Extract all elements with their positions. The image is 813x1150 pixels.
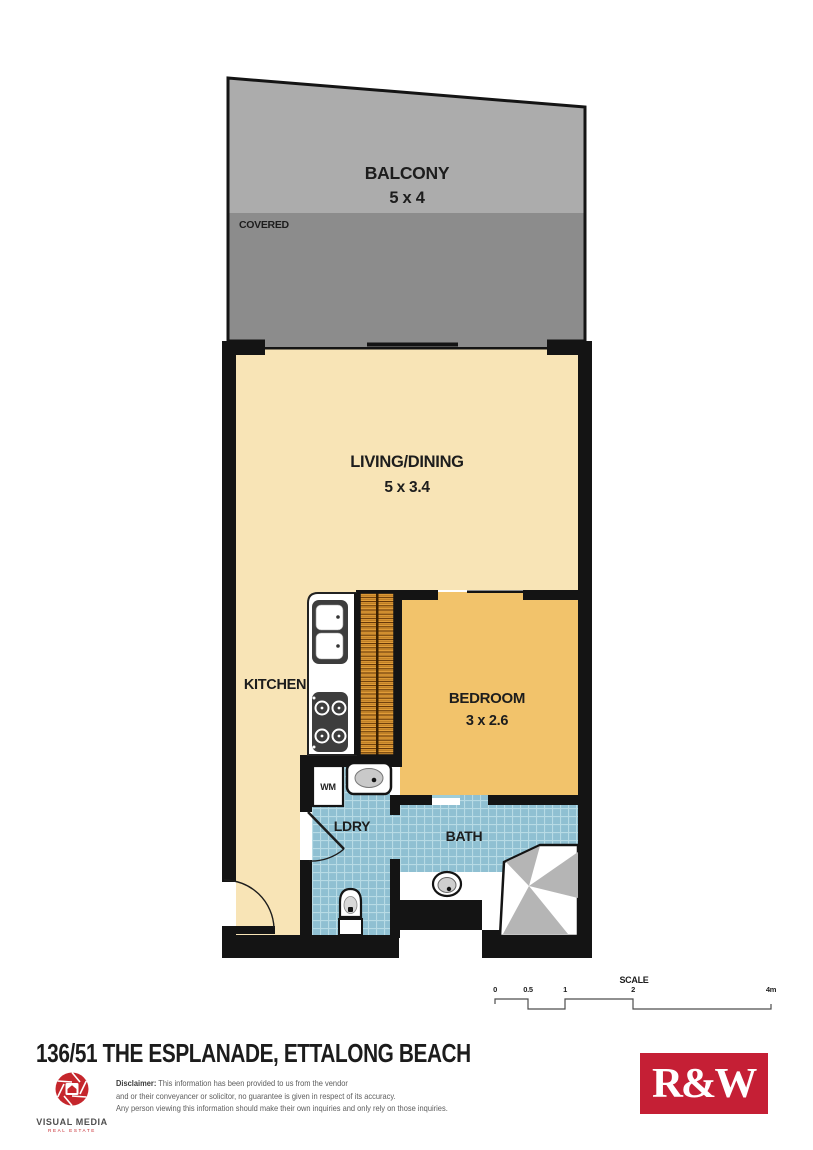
scale-tick-2: 2 [631,985,635,994]
living-label: LIVING/DINING [350,453,463,471]
bath-label: BATH [446,828,483,844]
balcony-sliding-door [265,347,547,350]
kitchen-label: KITCHEN [244,677,306,693]
visual-media-tagline: REAL ESTATE [36,1128,108,1133]
visual-media-logo: VISUAL MEDIA REAL ESTATE [36,1070,108,1133]
bedroom-label: BEDROOM [449,690,525,707]
agency-logo-text: R&W [652,1060,755,1108]
scale-tick-05: 0.5 [523,985,533,994]
bedroom-sliding-door [467,591,523,594]
disclaimer-label: Disclaimer: [116,1078,156,1088]
toilet [339,889,362,935]
kitchen-fittings [308,593,394,755]
laundry-tub [347,763,391,794]
disclaimer-line1: This information has been provided to us… [158,1078,348,1088]
floors [236,339,578,937]
bath-basin [433,872,461,896]
bedroom-dims: 3 x 2.6 [466,713,508,729]
balcony-covered-label: COVERED [239,219,290,231]
scale-tick-1: 1 [563,985,567,994]
property-address: 136/51 THE ESPLANADE, ETTALONG BEACH [36,1038,471,1069]
bedroom-wardrobe [360,593,394,755]
shower [500,845,578,936]
kitchen-sink [312,600,348,664]
hall-floor [236,757,300,937]
scale-bar-line [495,999,771,1009]
bath-cavity-slider [432,795,460,798]
visual-media-name: VISUAL MEDIA [36,1117,108,1127]
washing-machine-label: WM [320,782,335,792]
scale-title: SCALE [619,975,648,985]
scale-tick-4m: 4m [766,985,777,994]
living-dims: 5 x 3.4 [384,479,430,496]
laundry-label: LDRY [334,818,371,834]
laundry-bath-doorway [390,815,400,859]
scale-bar: SCALE 0 0.5 1 2 4m [493,975,777,1009]
floorplan-drawing: BALCONY 5 x 4 COVERED [0,0,813,1030]
camera-aperture-icon [36,1070,108,1110]
kitchen-stove [312,692,348,752]
agency-logo: R&W [640,1053,768,1114]
floorplan-page: BALCONY 5 x 4 COVERED [0,0,813,1150]
balcony-area: BALCONY 5 x 4 COVERED [228,78,585,341]
disclaimer-text: Disclaimer: This information has been pr… [116,1077,494,1115]
disclaimer-line2: and or their conveyancer or solicitor, n… [116,1090,494,1103]
balcony-label: BALCONY [365,163,450,183]
balcony-dims: 5 x 4 [389,189,425,207]
scale-tick-0: 0 [493,985,497,994]
disclaimer-line3: Any person viewing this information shou… [116,1102,494,1115]
balcony-covered-zone [229,213,584,341]
